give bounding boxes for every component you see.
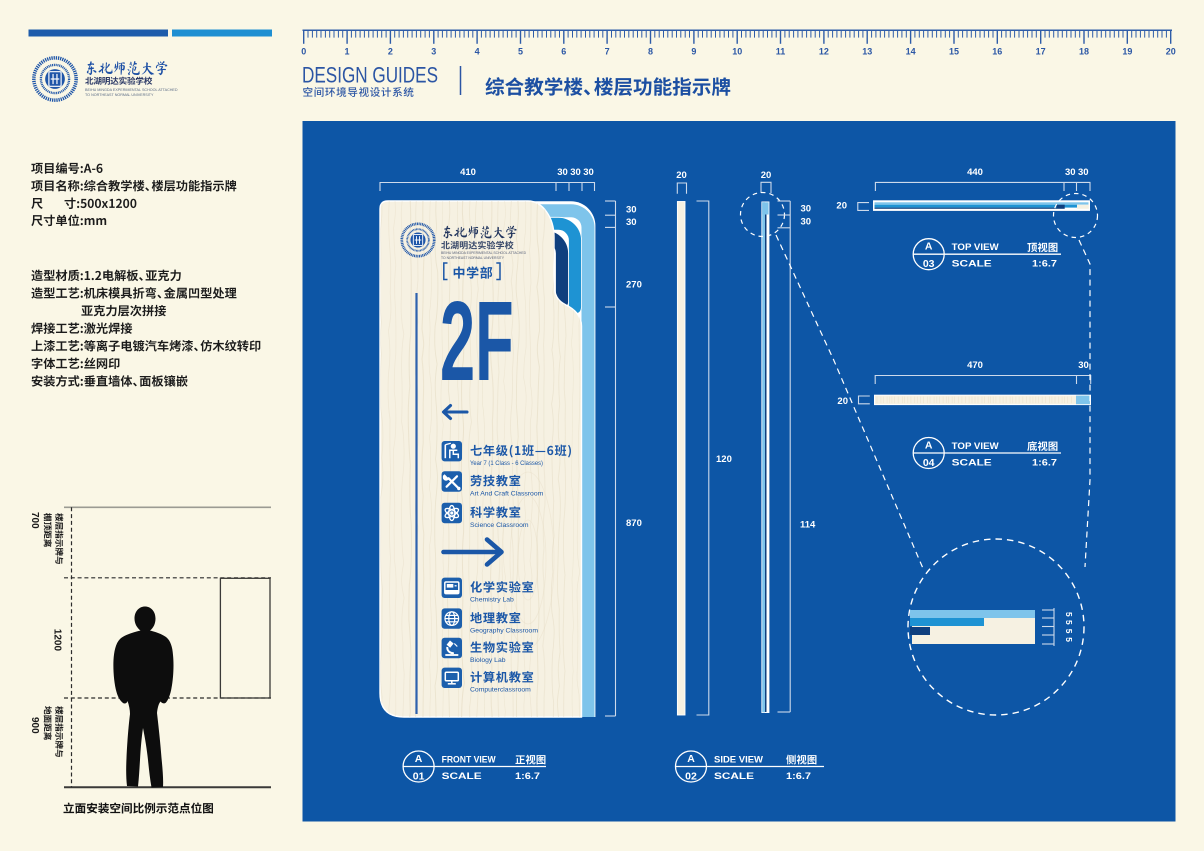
svg-text:114: 114 — [800, 520, 816, 531]
svg-text:30: 30 — [801, 204, 812, 215]
svg-text:4: 4 — [475, 47, 480, 57]
svg-text:440: 440 — [967, 167, 983, 178]
svg-text:6: 6 — [561, 47, 566, 57]
svg-text:900: 900 — [29, 717, 40, 734]
svg-text:30: 30 — [557, 167, 568, 178]
svg-text:Art And Craft Classroom: Art And Craft Classroom — [470, 490, 544, 497]
svg-text:TO NORTHEAST NORMAL UNIVERSITY: TO NORTHEAST NORMAL UNIVERSITY — [441, 256, 505, 260]
svg-text:8: 8 — [648, 47, 653, 57]
svg-text:04: 04 — [923, 457, 935, 469]
svg-text:1:6.7: 1:6.7 — [515, 771, 540, 781]
svg-text:A: A — [687, 753, 695, 765]
svg-text:16: 16 — [992, 47, 1002, 57]
svg-text:20: 20 — [836, 201, 847, 212]
svg-text:470: 470 — [967, 360, 983, 371]
svg-text:270: 270 — [626, 280, 642, 291]
svg-text:30: 30 — [1078, 167, 1089, 178]
svg-text:20: 20 — [676, 170, 687, 181]
svg-text:1: 1 — [345, 47, 350, 57]
svg-text:20: 20 — [761, 170, 772, 181]
svg-text:1:6.7: 1:6.7 — [1032, 458, 1057, 468]
svg-text:12: 12 — [819, 47, 829, 57]
svg-text:Computerclassroom: Computerclassroom — [470, 687, 531, 694]
svg-text:870: 870 — [626, 518, 642, 529]
svg-text:BEIHU MINGDA EXPERIMENTAL SCHO: BEIHU MINGDA EXPERIMENTAL SCHOOL ATTACHE… — [441, 251, 527, 255]
svg-text:1200: 1200 — [52, 629, 63, 652]
svg-text:03: 03 — [923, 258, 935, 270]
svg-text:20: 20 — [837, 396, 848, 407]
svg-text:02: 02 — [685, 771, 697, 783]
svg-text:5: 5 — [518, 47, 523, 57]
svg-text:DESIGN GUIDES: DESIGN GUIDES — [302, 63, 438, 88]
svg-text:0: 0 — [301, 47, 306, 57]
svg-text:BEIHU MINGDA EXPERIMENTAL SCHO: BEIHU MINGDA EXPERIMENTAL SCHOOL ATTACHE… — [85, 88, 178, 92]
svg-text:Biology Lab: Biology Lab — [470, 657, 506, 664]
svg-text:30: 30 — [1065, 167, 1076, 178]
svg-text:20: 20 — [1166, 47, 1176, 57]
svg-text:SCALE: SCALE — [714, 771, 754, 781]
svg-text:30: 30 — [570, 167, 581, 178]
svg-text:Science Classroom: Science Classroom — [470, 522, 529, 529]
svg-text:11: 11 — [776, 47, 786, 57]
svg-text:TOP VIEW: TOP VIEW — [952, 241, 999, 252]
svg-text:1:6.7: 1:6.7 — [786, 771, 811, 781]
svg-text:30: 30 — [626, 205, 637, 216]
svg-text:SIDE VIEW: SIDE VIEW — [714, 754, 763, 765]
svg-text:5: 5 — [1064, 612, 1074, 617]
svg-text:5: 5 — [1064, 629, 1074, 634]
svg-text:5: 5 — [1064, 620, 1074, 625]
svg-text:15: 15 — [949, 47, 959, 57]
svg-text:10: 10 — [732, 47, 742, 57]
svg-text:2: 2 — [388, 47, 393, 57]
svg-text:120: 120 — [716, 454, 732, 465]
svg-text:FRONT VIEW: FRONT VIEW — [442, 754, 496, 765]
svg-text:30: 30 — [1078, 360, 1089, 371]
svg-text:SCALE: SCALE — [952, 458, 992, 468]
svg-text:TOP VIEW: TOP VIEW — [952, 440, 999, 451]
svg-text:Year 7 (1 Class - 6 Classes): Year 7 (1 Class - 6 Classes) — [470, 460, 543, 467]
svg-text:410: 410 — [460, 167, 476, 178]
svg-text:7: 7 — [605, 47, 610, 57]
svg-text:SCALE: SCALE — [952, 259, 992, 269]
svg-text:Geography Classroom: Geography Classroom — [470, 627, 538, 634]
svg-text:1:6.7: 1:6.7 — [1032, 259, 1057, 269]
svg-text:14: 14 — [906, 47, 916, 57]
svg-text:30: 30 — [801, 216, 812, 227]
svg-text:2F: 2F — [440, 278, 514, 404]
svg-text:13: 13 — [862, 47, 872, 57]
svg-text:19: 19 — [1122, 47, 1132, 57]
svg-text:SCALE: SCALE — [442, 771, 482, 781]
svg-text:5: 5 — [1064, 637, 1074, 642]
svg-text:17: 17 — [1036, 47, 1046, 57]
svg-text:A: A — [925, 440, 933, 452]
svg-text:30: 30 — [626, 217, 637, 228]
svg-text:3: 3 — [431, 47, 436, 57]
svg-text:700: 700 — [29, 512, 40, 529]
svg-text:Chemistry Lab: Chemistry Lab — [470, 597, 514, 604]
svg-text:A: A — [415, 753, 423, 765]
svg-text:30: 30 — [583, 167, 594, 178]
svg-text:TO NORTHEAST NORMAL UNIVERSITY: TO NORTHEAST NORMAL UNIVERSITY — [85, 93, 154, 97]
svg-text:9: 9 — [691, 47, 696, 57]
svg-text:18: 18 — [1079, 47, 1089, 57]
svg-text:A: A — [925, 241, 933, 253]
svg-text:01: 01 — [413, 771, 425, 783]
